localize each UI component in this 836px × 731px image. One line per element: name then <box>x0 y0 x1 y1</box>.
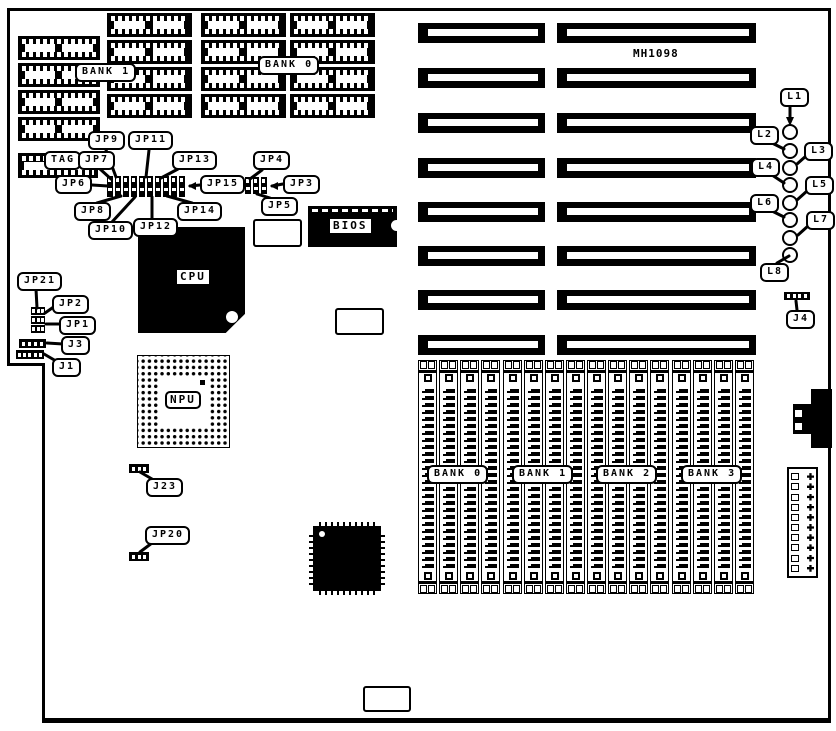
pin <box>18 353 21 357</box>
dip-socket <box>18 36 100 60</box>
dip-socket <box>290 13 375 37</box>
pin <box>138 555 141 559</box>
pin <box>32 309 35 313</box>
label-jp9: JP9 <box>88 131 125 150</box>
power-pin-row <box>791 544 814 551</box>
power-pin <box>791 494 799 501</box>
label-jp2: JP2 <box>52 295 89 314</box>
power-pin <box>791 514 799 521</box>
power-pin-row <box>791 504 814 511</box>
power-pin-plus <box>807 544 814 551</box>
oscillator <box>363 686 411 712</box>
pin <box>28 353 31 357</box>
connector-j23 <box>129 464 149 473</box>
pin <box>37 318 40 322</box>
label-l4: L4 <box>751 158 780 177</box>
pin <box>787 294 790 298</box>
motherboard-diagram: BANK 1 BANK 0 TAG JP9 JP11 JP7 JP13 JP6 … <box>0 0 836 731</box>
pin <box>34 353 37 357</box>
isa-slot-segment <box>557 68 756 88</box>
pin <box>798 294 801 298</box>
label-jp3: JP3 <box>283 175 320 194</box>
pin <box>28 342 31 346</box>
power-pin-plus <box>807 534 814 541</box>
isa-slot-segment <box>418 335 545 355</box>
label-l3: L3 <box>804 142 833 161</box>
isa-slot-segment <box>557 246 756 266</box>
label-l5: L5 <box>805 176 834 195</box>
jumper-block-jp3-jp5 <box>245 177 269 194</box>
isa-slot-segment <box>557 290 756 310</box>
power-pin <box>791 534 799 541</box>
board-edge-right <box>828 8 831 723</box>
connector-j4 <box>784 292 810 300</box>
isa-slot-segment <box>418 246 545 266</box>
connector-j1 <box>16 350 44 359</box>
isa-slot-segment <box>557 113 756 133</box>
qfp-chip <box>313 526 381 591</box>
pin <box>37 327 40 331</box>
power-pin <box>791 565 799 572</box>
power-pin-plus <box>807 514 814 521</box>
pin <box>32 318 35 322</box>
power-pin <box>791 504 799 511</box>
pin <box>793 294 796 298</box>
power-pin <box>791 473 799 480</box>
jumper-block-jp6-jp15 <box>107 176 187 197</box>
power-pin-plus <box>807 565 814 572</box>
power-pin-plus <box>807 555 814 562</box>
label-j3: J3 <box>61 336 90 355</box>
jumper-jp20 <box>129 552 149 561</box>
led-l3 <box>782 160 798 176</box>
keyboard-connector-pin <box>795 423 802 430</box>
qfp-pin1-dot <box>319 531 325 537</box>
board-edge-notch-v <box>42 363 45 723</box>
power-pin-row <box>791 473 814 480</box>
pin <box>143 467 146 471</box>
pin <box>37 309 40 313</box>
npu-pin1-dot <box>200 380 205 385</box>
pin <box>41 309 44 313</box>
label-jp14: JP14 <box>177 202 222 221</box>
power-pin-row <box>791 534 814 541</box>
power-pin-plus <box>807 473 814 480</box>
oscillator <box>253 219 302 247</box>
label-npu: NPU <box>165 391 201 409</box>
isa-slot-segment <box>418 68 545 88</box>
board-edge-left <box>7 8 10 366</box>
label-simm-bank2: BANK 2 <box>596 465 657 484</box>
label-jp4: JP4 <box>253 151 290 170</box>
label-l1: L1 <box>780 88 809 107</box>
power-connector <box>787 467 818 578</box>
label-jp8: JP8 <box>74 202 111 221</box>
pin <box>40 342 43 346</box>
power-pin-row <box>791 524 814 531</box>
led-l6 <box>782 212 798 228</box>
label-l2: L2 <box>750 126 779 145</box>
label-j4: J4 <box>786 310 815 329</box>
power-pin-row <box>791 555 814 562</box>
isa-slot-segment <box>418 23 545 43</box>
dip-socket <box>107 40 192 64</box>
isa-slot-segment <box>557 202 756 222</box>
pin <box>143 555 146 559</box>
label-jp10: JP10 <box>88 221 133 240</box>
power-pin-plus <box>807 524 814 531</box>
pin <box>34 342 37 346</box>
label-jp1: JP1 <box>59 316 96 335</box>
power-pin-row <box>791 565 814 572</box>
power-pin-plus <box>807 483 814 490</box>
power-pin-plus <box>807 494 814 501</box>
pin <box>132 467 135 471</box>
led-l4 <box>782 177 798 193</box>
power-pin <box>791 483 799 490</box>
board-model-text: MH1098 <box>633 47 679 60</box>
pin <box>23 353 26 357</box>
label-jp20: JP20 <box>145 526 190 545</box>
label-jp11: JP11 <box>128 131 173 150</box>
label-bios: BIOS <box>329 218 372 234</box>
keyboard-connector <box>811 389 832 448</box>
board-edge-bottom <box>42 718 831 723</box>
power-pin <box>791 555 799 562</box>
label-jp5: JP5 <box>261 197 298 216</box>
qfp-pins-right <box>381 532 385 585</box>
label-simm-bank3: BANK 3 <box>681 465 742 484</box>
led-l8 <box>782 247 798 263</box>
isa-slot-segment <box>418 290 545 310</box>
isa-slot-segment <box>557 158 756 178</box>
label-jp21: JP21 <box>17 272 62 291</box>
pin <box>32 327 35 331</box>
label-l8: L8 <box>760 263 789 282</box>
dip-socket <box>290 94 375 118</box>
label-simm-bank0: BANK 0 <box>427 465 488 484</box>
jumper-jp21-row <box>31 307 45 315</box>
pin <box>804 294 807 298</box>
isa-slot-segment <box>418 202 545 222</box>
led-l5 <box>782 195 798 211</box>
pin <box>132 555 135 559</box>
label-cpu: CPU <box>176 269 210 285</box>
label-bank0: BANK 0 <box>258 56 319 75</box>
led-l7 <box>782 230 798 246</box>
label-simm-bank1: BANK 1 <box>512 465 573 484</box>
label-l7: L7 <box>806 211 835 230</box>
isa-slot-segment <box>557 335 756 355</box>
label-bank1: BANK 1 <box>75 63 136 82</box>
label-j1: J1 <box>52 358 81 377</box>
label-jp6: JP6 <box>55 175 92 194</box>
dip-socket <box>18 90 100 114</box>
dip-socket <box>201 94 286 118</box>
keyboard-connector-pin <box>795 410 802 417</box>
power-pin <box>791 544 799 551</box>
jumper-jp1-row <box>31 325 45 333</box>
pin <box>138 467 141 471</box>
bios-notch <box>391 220 402 231</box>
power-pin-plus <box>807 504 814 511</box>
power-pin <box>791 524 799 531</box>
pin <box>41 327 44 331</box>
label-jp7: JP7 <box>78 151 115 170</box>
qfp-pins-left <box>309 532 313 585</box>
label-tag: TAG <box>44 151 81 170</box>
led-l2 <box>782 143 798 159</box>
led-l1 <box>782 124 798 140</box>
dip-socket <box>107 94 192 118</box>
pin <box>39 353 42 357</box>
jumper-jp2-row <box>31 316 45 324</box>
dip-socket <box>107 13 192 37</box>
power-pin-row <box>791 514 814 521</box>
isa-slot-segment <box>557 23 756 43</box>
connector-j3 <box>19 339 46 348</box>
oscillator <box>335 308 384 335</box>
label-jp15: JP15 <box>200 175 245 194</box>
cpu-pin1-dot <box>226 311 238 323</box>
pin <box>22 342 25 346</box>
power-pin-row <box>791 483 814 490</box>
board-edge-notch-h <box>7 363 44 366</box>
label-jp13: JP13 <box>172 151 217 170</box>
power-pin-row <box>791 494 814 501</box>
isa-slot-segment <box>418 158 545 178</box>
board-edge-top <box>7 8 831 11</box>
isa-slot-segment <box>418 113 545 133</box>
label-j23: J23 <box>146 478 183 497</box>
dip-socket <box>201 13 286 37</box>
pin <box>41 318 44 322</box>
bios-window <box>312 209 393 212</box>
label-l6: L6 <box>750 194 779 213</box>
label-jp12: JP12 <box>133 218 178 237</box>
